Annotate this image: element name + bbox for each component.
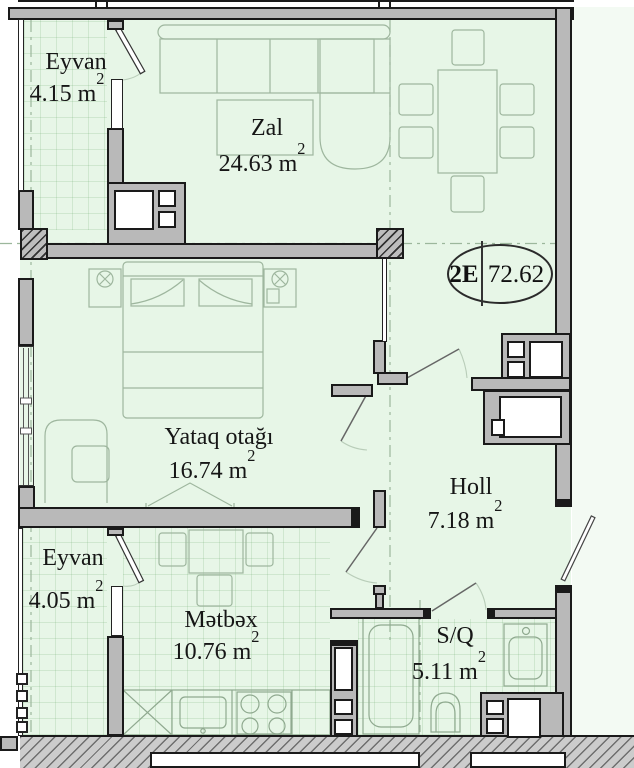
- room-area-zal: 24.63 m2: [219, 148, 306, 177]
- shaft-opening: [507, 361, 525, 378]
- hall-shaft-b: [471, 377, 571, 391]
- facade-window: [150, 752, 420, 768]
- duct-opening: [334, 699, 353, 715]
- floor-plan: 2E 72.62 Eyvan 4.15 m2 Zal 24.63 m2 Yata…: [0, 0, 634, 768]
- bed: [123, 262, 263, 418]
- room-label-holl: Holl: [450, 475, 493, 500]
- shaft-opening: [507, 698, 541, 738]
- wall-top: [8, 7, 574, 20]
- stove: [237, 692, 291, 734]
- shaft-opening: [114, 190, 154, 230]
- column-left: [20, 228, 48, 260]
- wall-cap: [330, 640, 358, 646]
- bedroom-door-leaf: [341, 392, 368, 441]
- shaft-opening: [486, 700, 504, 715]
- duct-opening: [334, 719, 353, 735]
- balcony-rail-upper: [18, 19, 24, 191]
- balcony-door-panel-upper: [111, 79, 123, 129]
- room-area-sq: 5.11 m2: [412, 656, 486, 685]
- toilet: [431, 693, 460, 732]
- entrance-jamb-bottom: [555, 585, 572, 593]
- unit-code: 2E: [449, 262, 478, 287]
- wall-cap: [487, 608, 495, 619]
- dining-table-set: [399, 30, 534, 212]
- room-label-metbex: Mətbəx: [184, 608, 257, 633]
- balcony-door-leaf-lower: [116, 534, 144, 583]
- wall-left-upper-segment: [18, 190, 34, 230]
- wall-bedroom-left-upper: [18, 278, 34, 346]
- room-area-holl: 7.18 m2: [428, 505, 503, 534]
- rail-post: [16, 673, 28, 685]
- facade-window: [470, 752, 566, 768]
- shaft-opening: [486, 718, 504, 734]
- room-area-metbex: 10.76 m2: [173, 636, 260, 665]
- wall-bathroom-top-right: [487, 608, 557, 619]
- door-jamb-lower: [107, 528, 124, 536]
- wall-balcony-door-lower: [107, 636, 124, 736]
- kitchen-sink: [180, 697, 226, 733]
- rail-post: [16, 707, 28, 719]
- rail-post: [16, 690, 28, 702]
- shaft-opening: [158, 190, 176, 207]
- wall-cap: [423, 608, 431, 619]
- balcony-door-panel-lower: [111, 586, 123, 636]
- wall-hall-west-a: [373, 340, 386, 374]
- unit-total-area: 72.62: [488, 262, 544, 287]
- bedroom-window: [18, 346, 34, 486]
- balcony-door-leaf-upper: [116, 28, 145, 74]
- shaft-opening: [491, 419, 505, 436]
- wall-hall-west-tbar: [377, 372, 408, 385]
- shaft-opening: [499, 396, 562, 438]
- nightstand-right: [264, 269, 296, 307]
- desk: [45, 420, 109, 503]
- shaft-opening: [529, 341, 563, 378]
- bathtub: [363, 618, 419, 734]
- entrance-door-leaf: [561, 516, 595, 581]
- kitchen-door-leaf: [346, 528, 377, 572]
- room-label-yataq: Yataq otağı: [165, 425, 274, 450]
- room-label-eyvan-lower: Eyvan: [42, 546, 103, 571]
- duct-opening: [334, 647, 353, 691]
- wall-bathroom-tab: [375, 593, 384, 609]
- room-area-yataq: 16.74 m2: [169, 455, 256, 484]
- wall-bedroom-bottom: [18, 507, 360, 528]
- kitchen-table-set: [159, 530, 273, 606]
- door-jamb-upper: [107, 20, 124, 30]
- shaft-opening: [507, 341, 525, 358]
- wall-zal-bedroom: [46, 243, 378, 259]
- wall-bedroom-door-stub: [331, 384, 373, 397]
- thin-partition-bedroom: [382, 258, 387, 342]
- unit-badge-divider: [481, 241, 483, 306]
- room-label-zal: Zal: [251, 116, 283, 141]
- room-area-eyvan-upper: 4.15 m2: [30, 78, 105, 107]
- room-label-sq: S/Q: [436, 624, 473, 649]
- wall-balcony-door-upper: [107, 128, 124, 184]
- zal-holl-door-leaf: [407, 349, 459, 378]
- shaft-opening: [158, 211, 176, 228]
- wall-bathroom-top-left: [330, 608, 431, 619]
- bathroom-sink: [504, 624, 547, 686]
- bathroom-door-leaf: [432, 583, 476, 611]
- balcony-rail-lower: [18, 528, 23, 736]
- rail-post: [16, 721, 28, 733]
- wall-cap: [351, 507, 360, 528]
- room-area-eyvan-lower: 4.05 m2: [29, 585, 104, 614]
- nightstand-left: [89, 269, 121, 307]
- entrance-jamb-top: [555, 499, 572, 507]
- wall-hall-west-b: [373, 490, 386, 528]
- facade-block-left: [0, 736, 18, 751]
- column-center: [376, 228, 404, 259]
